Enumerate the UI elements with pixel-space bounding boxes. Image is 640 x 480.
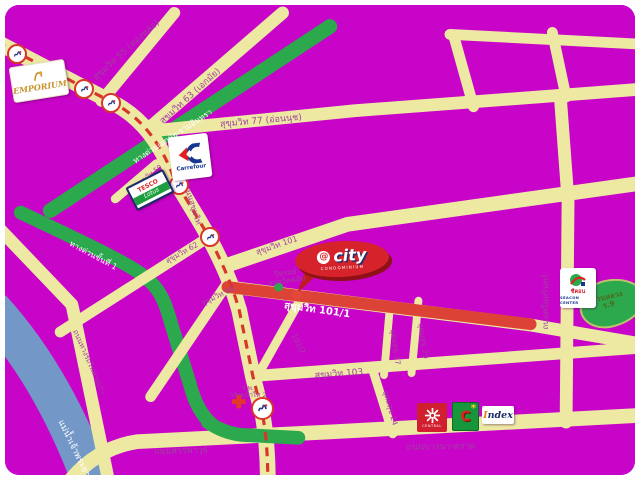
central-flower-icon bbox=[424, 407, 441, 424]
seacon-mark-icon bbox=[568, 272, 588, 289]
seacon-en-text: SEACON CENTER bbox=[560, 295, 596, 305]
bts-station-icon bbox=[251, 397, 274, 420]
big-c-logo-text: C bbox=[460, 410, 470, 424]
big-c-logo: C * bbox=[452, 402, 479, 431]
bts-glyph bbox=[206, 233, 215, 242]
central-logo-text: CENTRAL bbox=[422, 424, 442, 428]
bts-glyph bbox=[80, 85, 89, 94]
bts-station-icon bbox=[7, 44, 27, 64]
screenshot-frame: สุขุมวิท 55 (ทองหล่อ) สุขุมวิท 63 (เอกมั… bbox=[0, 0, 640, 480]
bts-station-icon bbox=[74, 79, 94, 99]
road-label-srinagarindra: ถนนศรีนครินทร์ bbox=[542, 274, 550, 329]
bts-glyph bbox=[13, 50, 22, 59]
bts-glyph bbox=[107, 99, 116, 108]
central-logo: CENTRAL bbox=[417, 403, 447, 432]
bangkok-area-map: สุขุมวิท 55 (ทองหล่อ) สุขุมวิท 63 (เอกมั… bbox=[5, 5, 635, 475]
at-sign-icon: @ bbox=[317, 250, 331, 264]
carrefour-mark-icon bbox=[175, 142, 203, 165]
carrefour-logo: Carrefour bbox=[167, 133, 212, 182]
bts-station-icon bbox=[101, 93, 121, 113]
red-marker-dot bbox=[291, 290, 301, 300]
atcity-logo-text: city bbox=[333, 247, 367, 265]
bts-glyph bbox=[257, 403, 268, 414]
index-logo-text: Index bbox=[483, 410, 513, 421]
bts-station-icon bbox=[200, 227, 220, 247]
big-c-star-icon: * bbox=[471, 403, 476, 414]
road-srinagarindra bbox=[560, 95, 568, 422]
atcity-tagline: CONDOMINIUM bbox=[321, 264, 365, 271]
bts-glyph bbox=[175, 181, 184, 190]
index-living-mall-logo: Index bbox=[482, 406, 514, 424]
road-label-sanphawut: ถนนสรรพาวุธ bbox=[154, 446, 209, 457]
seacon-square-logo: ซีคอน SEACON CENTER bbox=[560, 268, 596, 308]
road-label-bangna-trad: ถนนบางนา-ตราด bbox=[406, 443, 475, 454]
atcity-logo-row: @ city bbox=[317, 247, 367, 266]
